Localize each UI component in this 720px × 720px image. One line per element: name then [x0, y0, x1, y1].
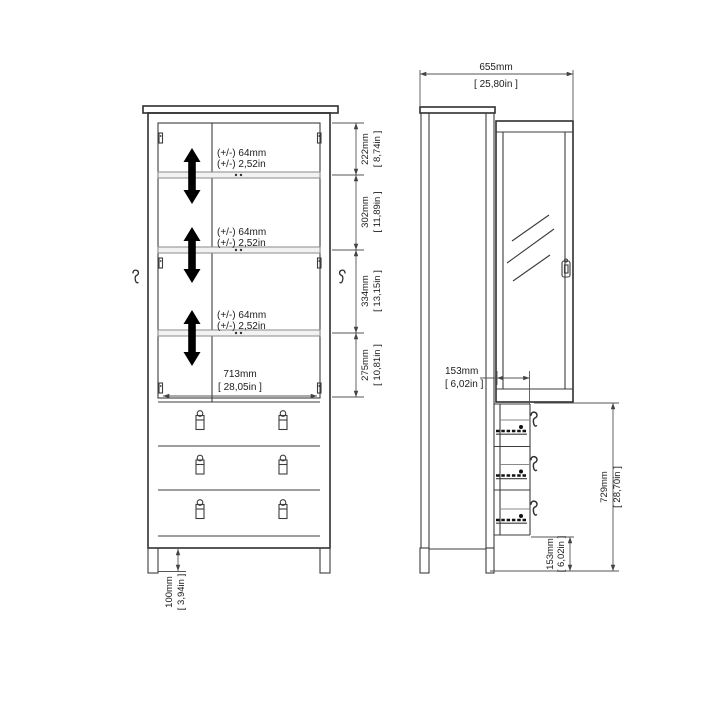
dimension-drawing: (+/-) 64mm (+/-) 2,52in (+/-) 64mm (+/-)… — [0, 0, 720, 720]
total-depth-in: [ 25,80in ] — [474, 79, 518, 90]
side-back-leg — [420, 548, 429, 573]
dim-inner-width: 713mm [ 28,05in ] — [163, 369, 317, 396]
segment-in-label: [ 13,15in ] — [372, 270, 383, 312]
dim-total-depth: 655mm [ 25,80in ] — [420, 62, 573, 120]
drawer-handle-hook-icon — [531, 412, 537, 515]
drawing-svg: (+/-) 64mm (+/-) 2,52in (+/-) 64mm (+/-)… — [0, 0, 720, 720]
inner-width-mm: 713mm — [223, 369, 256, 380]
drawer-handle — [196, 411, 287, 519]
open-door — [496, 121, 573, 402]
segment-in-label: [ 10,81in ] — [372, 344, 383, 386]
segment-mm-label: 275mm — [360, 349, 371, 381]
side-view: 655mm [ 25,80in ] — [420, 62, 623, 573]
shelf-tolerance-mm: (+/-) 64mm — [217, 310, 266, 321]
bottom-clearance-in: [ 6,02in ] — [556, 536, 567, 572]
drawer-depth-in: [ 6,02in ] — [445, 379, 484, 390]
front-left-leg — [148, 548, 158, 573]
segment-mm-label: 222mm — [360, 133, 371, 165]
shelf-tolerance-mm: (+/-) 64mm — [217, 227, 266, 238]
drawer-depth-mm: 153mm — [445, 366, 478, 377]
shelf-tolerance-mm: (+/-) 64mm — [217, 148, 266, 159]
shelf-1 — [158, 172, 320, 178]
dim-height-chain: 222mm [ 8,74in ] 302mm [ 11,89in ] 334mm… — [332, 123, 383, 397]
leg-height-mm: 100mm — [164, 576, 175, 608]
door-handle-hook-icon — [133, 270, 345, 283]
segment-mm-label: 302mm — [360, 196, 371, 228]
segment-in-label: [ 8,74in ] — [372, 131, 383, 167]
shelf-tolerance-in: (+/-) 2,52in — [217, 159, 266, 170]
side-front-leg — [486, 548, 494, 573]
shelf-tolerance-in: (+/-) 2,52in — [217, 321, 266, 332]
drawer-slide-rail — [496, 425, 527, 523]
inner-width-in: [ 28,05in ] — [218, 382, 262, 393]
segment-mm-label: 334mm — [360, 275, 371, 307]
bottom-clearance-mm: 153mm — [545, 538, 556, 570]
glass-hatch-icon — [507, 215, 554, 281]
open-drawers — [494, 404, 537, 535]
dim-drawer-open-depth: 153mm [ 6,02in ] — [445, 366, 530, 404]
dim-bottom-clearance: 153mm [ 6,02in ] — [531, 536, 574, 572]
total-depth-mm: 655mm — [479, 62, 512, 73]
drawer-section-height-mm: 729mm — [599, 471, 610, 503]
front-top-board — [143, 106, 338, 113]
door-handle — [562, 259, 570, 277]
dim-leg-height: 100mm [ 3,94in ] — [158, 549, 187, 610]
front-right-leg — [320, 548, 330, 573]
shelf-tolerance-in: (+/-) 2,52in — [217, 238, 266, 249]
segment-in-label: [ 11,89in ] — [372, 191, 383, 232]
side-top-board — [420, 107, 495, 113]
drawer-section-height-in: [ 28,70in ] — [612, 466, 623, 508]
front-view: (+/-) 64mm (+/-) 2,52in (+/-) 64mm (+/-)… — [133, 106, 383, 610]
leg-height-in: [ 3,94in ] — [176, 574, 187, 610]
